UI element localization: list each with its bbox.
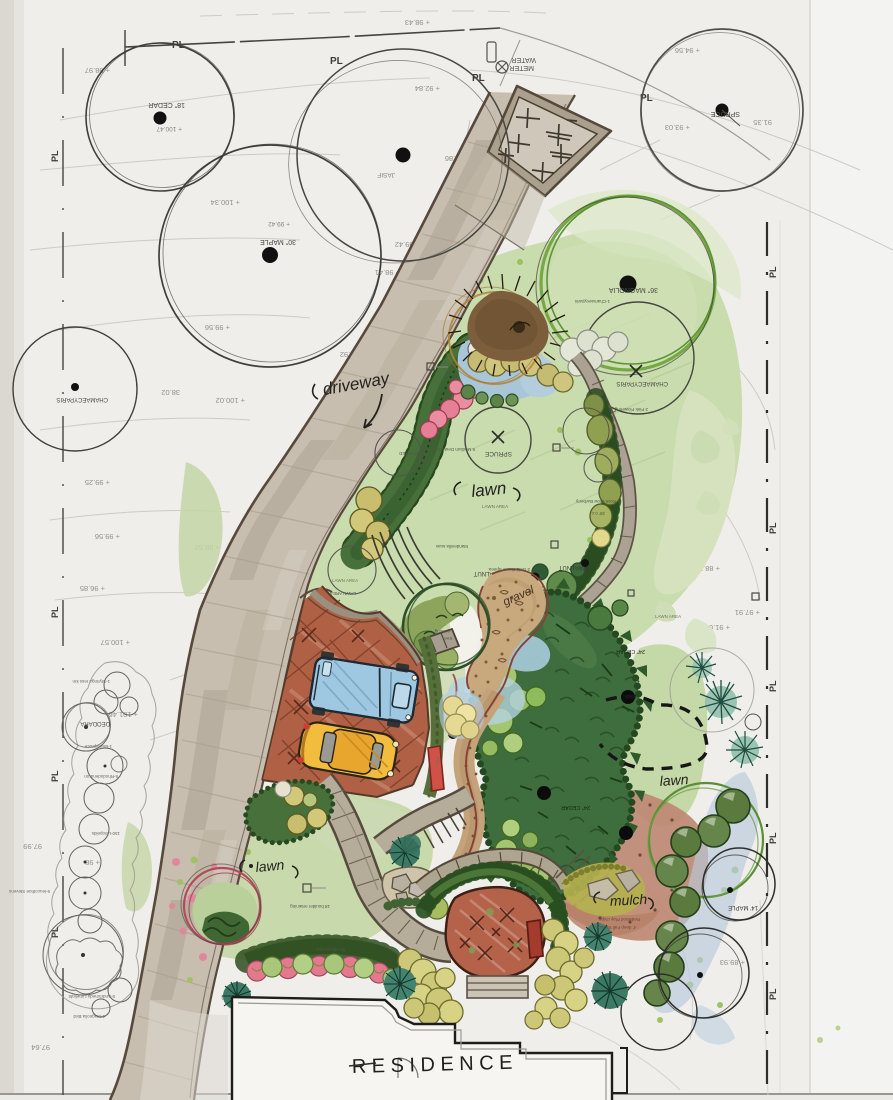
svg-text:14' MAPLE: 14' MAPLE bbox=[728, 904, 758, 910]
svg-text:1-Chamaecyparis: 1-Chamaecyparis bbox=[574, 299, 610, 304]
svg-text:97.64: 97.64 bbox=[31, 1043, 50, 1052]
svg-text:existing: existing bbox=[434, 629, 450, 634]
svg-text:+ 99.56: + 99.56 bbox=[205, 323, 230, 332]
svg-text:18" CEDAR: 18" CEDAR bbox=[148, 101, 185, 108]
svg-text:+ 96.85: + 96.85 bbox=[80, 584, 105, 593]
svg-text:PL: PL bbox=[50, 150, 60, 162]
svg-text:LAWN AREA: LAWN AREA bbox=[655, 614, 681, 619]
svg-text:1-BlueSpruce: 1-BlueSpruce bbox=[84, 744, 112, 749]
svg-text:+ 98.97: + 98.97 bbox=[85, 66, 110, 75]
svg-text:PL: PL bbox=[50, 770, 60, 782]
svg-text:3' WALNUT: 3' WALNUT bbox=[558, 564, 590, 570]
svg-text:RESIDENCE: RESIDENCE bbox=[352, 1052, 519, 1078]
svg-text:+ 99.42: + 99.42 bbox=[268, 220, 290, 227]
svg-text:lawn: lawn bbox=[470, 478, 507, 501]
svg-text:1-Styringa ress km: 1-Styringa ress km bbox=[72, 679, 110, 684]
svg-text:5 Rose Glow Barberry: 5 Rose Glow Barberry bbox=[575, 499, 620, 504]
svg-text:METER: METER bbox=[510, 64, 535, 71]
svg-text:+ 100.57: + 100.57 bbox=[101, 638, 130, 647]
svg-text:OFF: OFF bbox=[421, 459, 430, 464]
svg-text:+ 98.43: + 98.43 bbox=[405, 18, 430, 27]
svg-text:5-leucothoe Stevens: 5-leucothoe Stevens bbox=[8, 889, 50, 894]
svg-text:30" MAPLE: 30" MAPLE bbox=[260, 238, 296, 245]
svg-text:PL: PL bbox=[768, 832, 778, 844]
svg-text:+ 100.47: + 100.47 bbox=[156, 125, 182, 132]
svg-text:+ 99.25: + 99.25 bbox=[85, 478, 110, 487]
svg-text:5-Rhododendron: 5-Rhododendron bbox=[84, 774, 118, 779]
svg-text:mulch: mulch bbox=[609, 891, 647, 909]
svg-text:38' o.c.: 38' o.c. bbox=[591, 511, 605, 516]
svg-text:+ 97.91: + 97.91 bbox=[735, 608, 760, 617]
svg-text:PL: PL bbox=[50, 606, 60, 618]
svg-text:36" MAGNOLIA: 36" MAGNOLIA bbox=[609, 286, 658, 293]
svg-text:lawn: lawn bbox=[659, 771, 689, 789]
svg-text:+ 92.84: + 92.84 bbox=[415, 84, 440, 93]
svg-text:Mandevilla suav: Mandevilla suav bbox=[435, 544, 468, 549]
svg-text:+ 99.56: + 99.56 bbox=[95, 532, 120, 541]
svg-text:150-Liriopelds: 150-Liriopelds bbox=[91, 831, 120, 836]
svg-text:5 Medium Deutschien bmd: 5 Medium Deutschien bmd bbox=[421, 447, 475, 452]
svg-text:CHAMAECYPARIS: CHAMAECYPARIS bbox=[616, 380, 668, 386]
svg-text:WATER: WATER bbox=[512, 56, 537, 63]
svg-text:CHAMAECYPARIS: CHAMAECYPARIS bbox=[56, 396, 108, 402]
svg-text:JASIF: JASIF bbox=[377, 171, 395, 178]
svg-text:LAWN AREA: LAWN AREA bbox=[332, 578, 358, 583]
svg-text:3 Pink Flowering: 3 Pink Flowering bbox=[614, 407, 648, 412]
svg-text:+ 100.34: + 100.34 bbox=[211, 198, 240, 207]
svg-text:PL: PL bbox=[768, 680, 778, 692]
svg-text:tree: tree bbox=[444, 636, 452, 641]
svg-text:+ 93.03: + 93.03 bbox=[665, 123, 690, 132]
svg-text:4' deep Fall Surface: 4' deep Fall Surface bbox=[596, 925, 636, 930]
svg-text:+ 89.93: + 89.93 bbox=[720, 958, 745, 967]
svg-text:24" CEDAR: 24" CEDAR bbox=[561, 804, 590, 810]
svg-text:1-Magnolia Bird: 1-Magnolia Bird bbox=[73, 1014, 105, 1019]
svg-text:PL: PL bbox=[768, 266, 778, 278]
svg-text:LAWN AREA: LAWN AREA bbox=[330, 591, 356, 596]
svg-text:PL: PL bbox=[330, 56, 343, 67]
svg-text:lawn: lawn bbox=[255, 857, 285, 875]
svg-text:Redwood Play chips: Redwood Play chips bbox=[598, 917, 640, 922]
svg-text:LAWN AREA: LAWN AREA bbox=[482, 504, 508, 509]
svg-text:PL: PL bbox=[768, 988, 778, 1000]
svg-text:+ 98: + 98 bbox=[85, 858, 100, 867]
svg-text:SPRUCE: SPRUCE bbox=[710, 110, 740, 117]
svg-text:+ 94.56: + 94.56 bbox=[675, 46, 700, 55]
svg-text:PL: PL bbox=[472, 73, 485, 84]
svg-text:5-Andromeda Limelight: 5-Andromeda Limelight bbox=[68, 994, 115, 999]
svg-text:24" CEDAR: 24" CEDAR bbox=[616, 648, 645, 654]
svg-text:38.02: 38.02 bbox=[161, 388, 180, 397]
svg-text:PL: PL bbox=[768, 522, 778, 534]
svg-text:SPRUCE: SPRUCE bbox=[484, 450, 512, 457]
svg-text:flto decent line: flto decent line bbox=[315, 947, 345, 952]
svg-text:+ 100.02: + 100.02 bbox=[216, 396, 245, 405]
svg-text:DEODARA: DEODARA bbox=[80, 720, 110, 726]
svg-text:18 boulder retaining: 18 boulder retaining bbox=[290, 904, 330, 909]
svg-text:97.99: 97.99 bbox=[23, 842, 42, 851]
svg-text:91.35: 91.35 bbox=[753, 118, 772, 127]
svg-text:3 Gold Flame Spirea: 3 Gold Flame Spirea bbox=[488, 567, 530, 572]
